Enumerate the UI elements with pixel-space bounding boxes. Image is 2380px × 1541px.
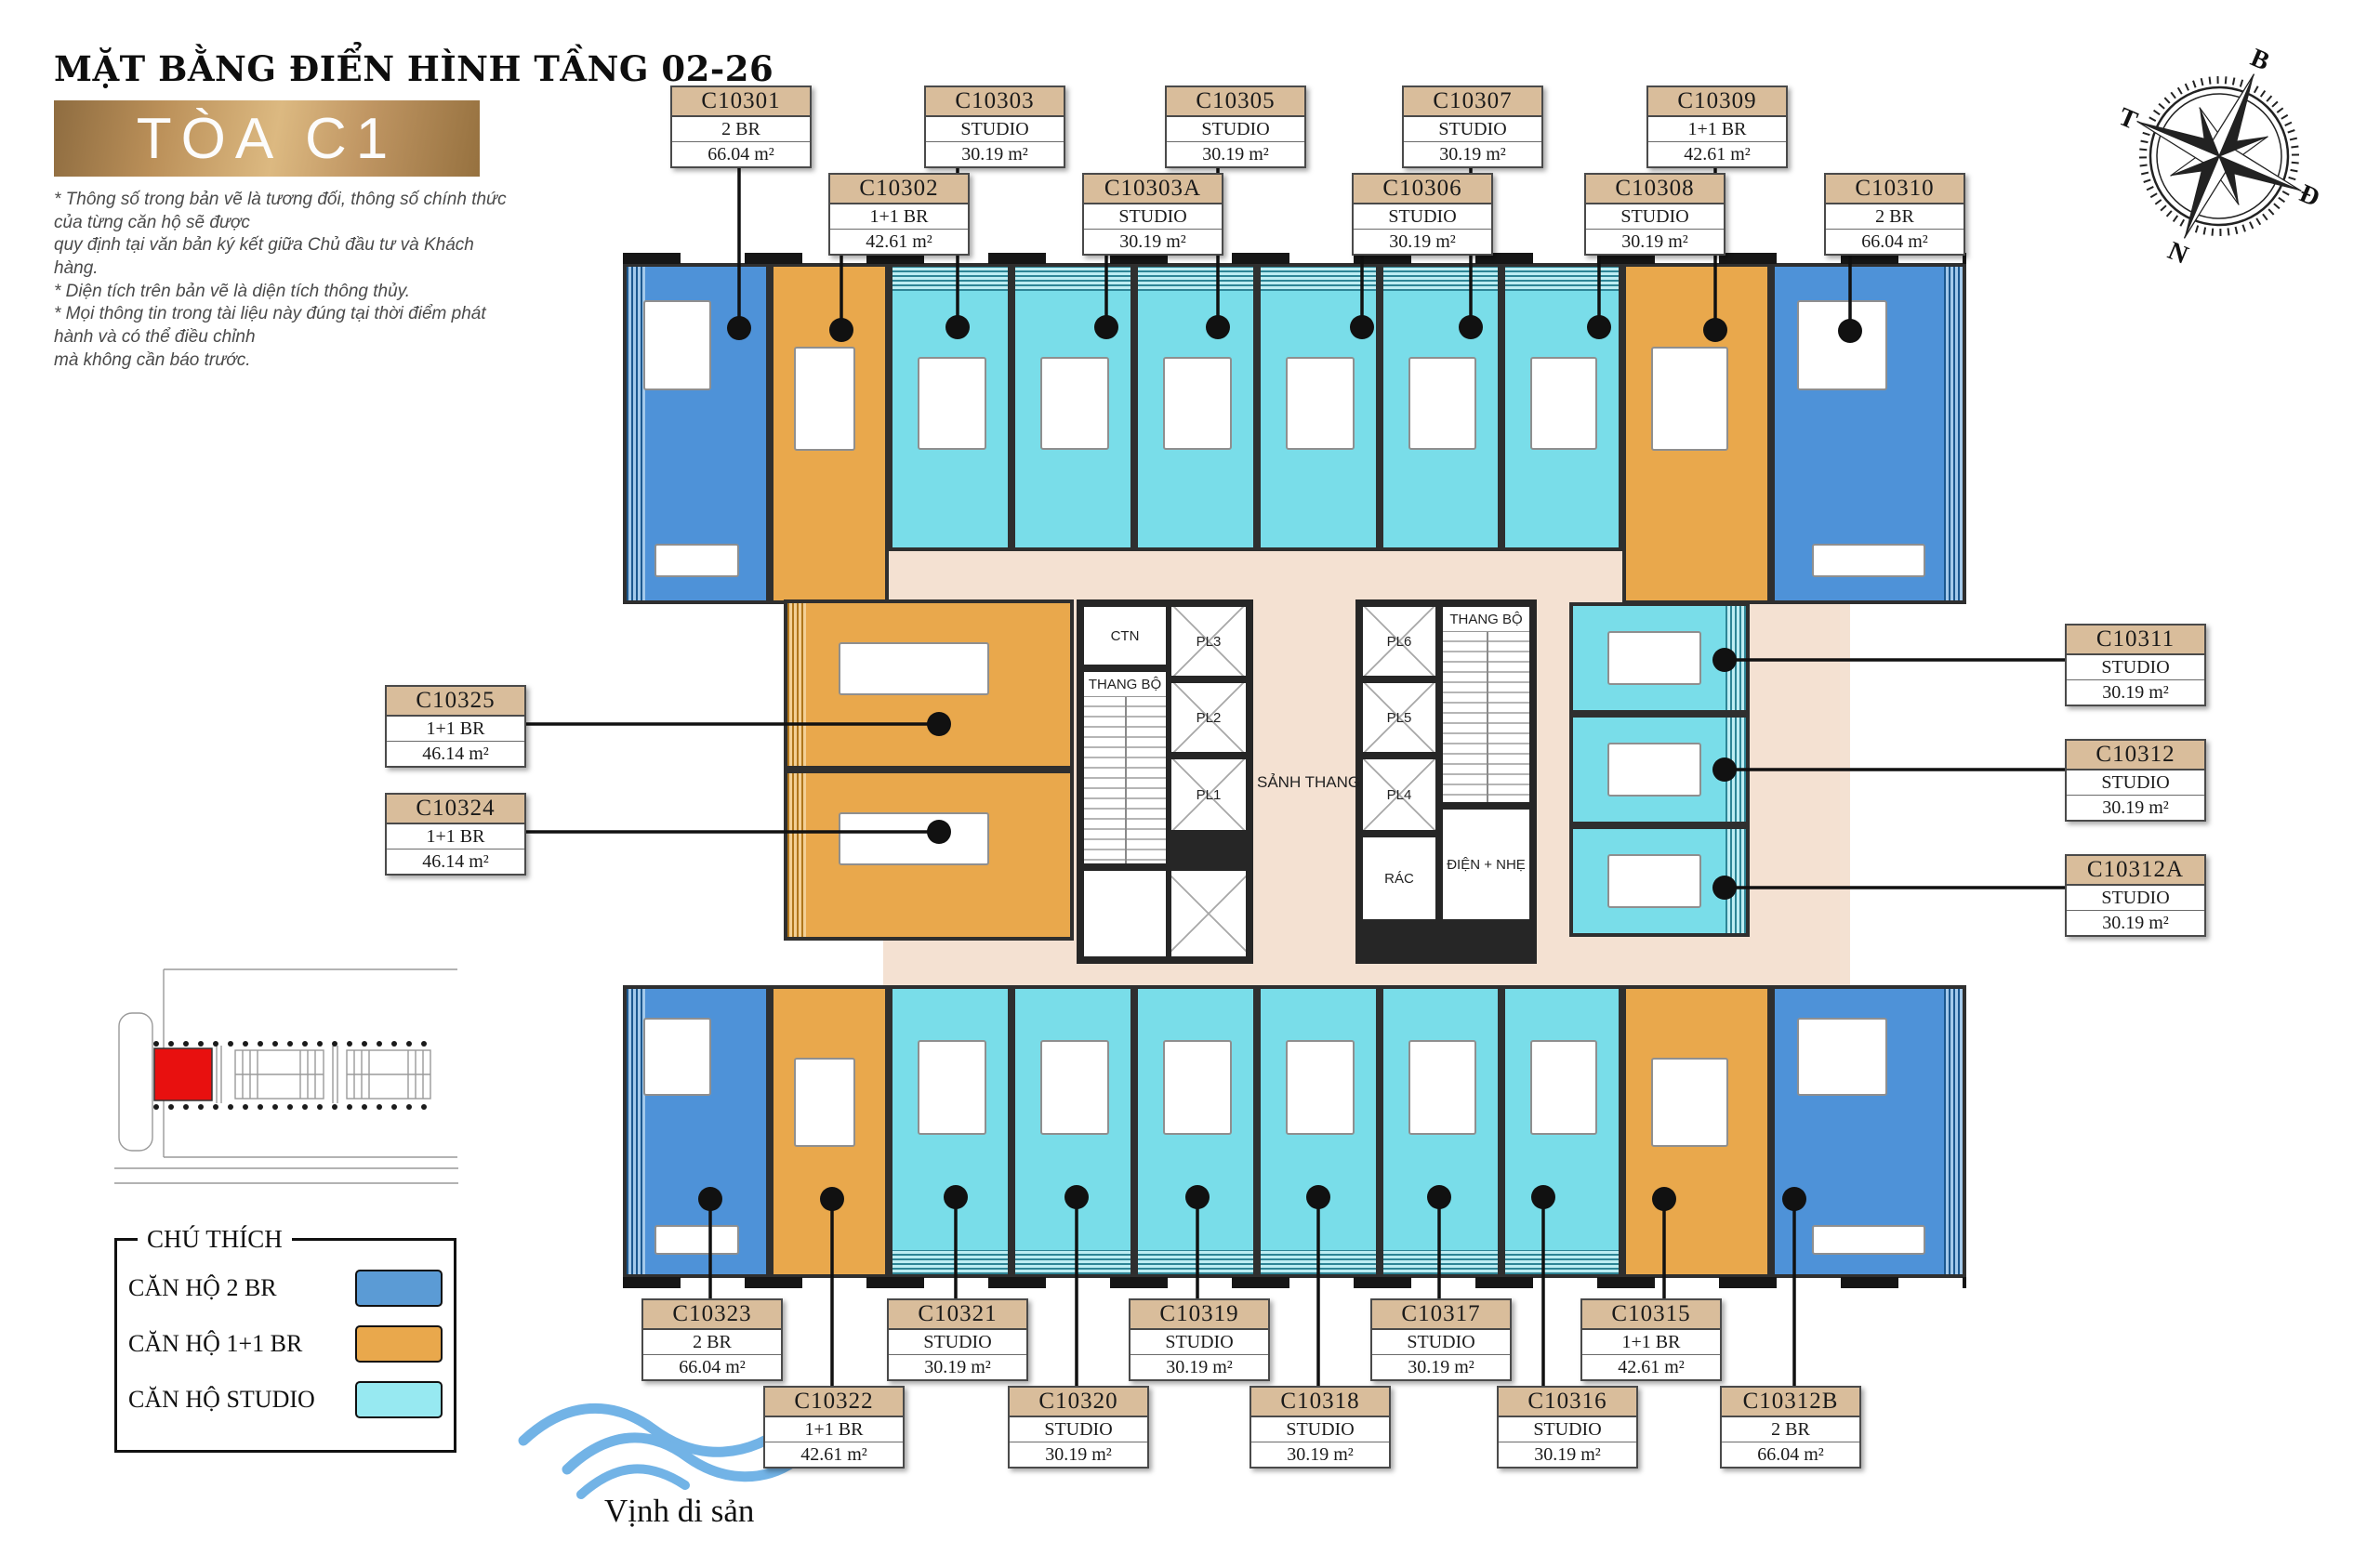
unit-area-value: 30.19 m² [2067, 911, 2204, 935]
legend-row-2br: CĂN HỘ 2 BR [128, 1267, 443, 1310]
unit-id: C10312A [2067, 856, 2204, 886]
unit-area-value: 30.19 m² [1354, 230, 1491, 254]
legend-swatch-studio [355, 1381, 443, 1418]
legend: CHÚ THÍCH CĂN HỘ 2 BR CĂN HỘ 1+1 BR CĂN … [114, 1238, 456, 1453]
unit-area-value: 46.14 m² [387, 742, 524, 766]
unit-id: C10303A [1084, 175, 1222, 204]
unit-area-value: 42.61 m² [765, 1442, 903, 1467]
unit-label-c10319: C10319 STUDIO 30.19 m² [1129, 1298, 1270, 1381]
unit-area-value: 66.04 m² [672, 142, 810, 166]
unit-id: C10318 [1251, 1388, 1389, 1417]
legend-label: CĂN HỘ STUDIO [128, 1386, 315, 1414]
unit-type: STUDIO [1084, 204, 1222, 230]
unit-label-c10301: C10301 2 BR 66.04 m² [670, 86, 812, 168]
unit-label-c10312: C10312 STUDIO 30.19 m² [2065, 739, 2206, 822]
unit-type: STUDIO [1251, 1417, 1389, 1442]
unit-label-c10324: C10324 1+1 BR 46.14 m² [385, 793, 526, 876]
unit-label-c10322: C10322 1+1 BR 42.61 m² [763, 1386, 905, 1469]
unit-label-c10320: C10320 STUDIO 30.19 m² [1008, 1386, 1149, 1469]
unit-id: C10324 [387, 795, 524, 824]
unit-id: C10306 [1354, 175, 1491, 204]
unit-label-c10303a: C10303A STUDIO 30.19 m² [1082, 173, 1223, 256]
unit-label-c10310: C10310 2 BR 66.04 m² [1824, 173, 1965, 256]
unit-area-value: 66.04 m² [643, 1355, 781, 1379]
unit-label-c10308: C10308 STUDIO 30.19 m² [1584, 173, 1725, 256]
unit-area-value: 66.04 m² [1826, 230, 1963, 254]
unit-area-value: 30.19 m² [2067, 796, 2204, 820]
unit-type: STUDIO [1372, 1330, 1510, 1355]
legend-swatch-1plus1br [355, 1325, 443, 1363]
unit-type: 1+1 BR [1582, 1330, 1720, 1355]
unit-area-value: 30.19 m² [1404, 142, 1541, 166]
unit-id: C10316 [1499, 1388, 1636, 1417]
unit-area-value: 30.19 m² [1084, 230, 1222, 254]
unit-id: C10312 [2067, 741, 2204, 770]
unit-id: C10308 [1586, 175, 1724, 204]
unit-type: 1+1 BR [830, 204, 968, 230]
unit-id: C10321 [889, 1300, 1026, 1330]
unit-id: C10325 [387, 687, 524, 717]
unit-label-c10303: C10303 STUDIO 30.19 m² [924, 86, 1065, 168]
leader-dots [698, 315, 1862, 1211]
unit-area-value: 30.19 m² [2067, 680, 2204, 705]
unit-id: C10323 [643, 1300, 781, 1330]
unit-type: STUDIO [1010, 1417, 1147, 1442]
legend-swatch-2br [355, 1270, 443, 1307]
unit-label-c10307: C10307 STUDIO 30.19 m² [1402, 86, 1543, 168]
unit-id: C10302 [830, 175, 968, 204]
unit-area-value: 46.14 m² [387, 850, 524, 874]
unit-area-value: 30.19 m² [926, 142, 1064, 166]
unit-id: C10319 [1130, 1300, 1268, 1330]
unit-area-value: 66.04 m² [1722, 1442, 1859, 1467]
unit-type: STUDIO [1586, 204, 1724, 230]
unit-id: C10303 [926, 87, 1064, 117]
legend-label: CĂN HỘ 1+1 BR [128, 1330, 302, 1358]
unit-area-value: 42.61 m² [1582, 1355, 1720, 1379]
unit-type: STUDIO [1167, 117, 1304, 142]
unit-area-value: 30.19 m² [1010, 1442, 1147, 1467]
legend-row-1plus1br: CĂN HỘ 1+1 BR [128, 1323, 443, 1365]
unit-type: 2 BR [1722, 1417, 1859, 1442]
unit-label-c10311: C10311 STUDIO 30.19 m² [2065, 624, 2206, 706]
unit-area-value: 30.19 m² [889, 1355, 1026, 1379]
legend-row-studio: CĂN HỘ STUDIO [128, 1378, 443, 1421]
unit-area-value: 42.61 m² [830, 230, 968, 254]
unit-type: 1+1 BR [1648, 117, 1786, 142]
unit-area-value: 30.19 m² [1586, 230, 1724, 254]
unit-type: STUDIO [2067, 770, 2204, 796]
legend-label: CĂN HỘ 2 BR [128, 1274, 277, 1302]
unit-type: STUDIO [1130, 1330, 1268, 1355]
unit-type: 1+1 BR [387, 824, 524, 850]
unit-area-value: 30.19 m² [1167, 142, 1304, 166]
unit-type: 1+1 BR [387, 717, 524, 742]
unit-label-c10312a: C10312A STUDIO 30.19 m² [2065, 854, 2206, 937]
unit-label-c10315: C10315 1+1 BR 42.61 m² [1580, 1298, 1722, 1381]
unit-type: STUDIO [889, 1330, 1026, 1355]
unit-type: STUDIO [1499, 1417, 1636, 1442]
unit-id: C10301 [672, 87, 810, 117]
unit-id: C10307 [1404, 87, 1541, 117]
unit-id: C10312B [1722, 1388, 1859, 1417]
legend-title: CHÚ THÍCH [138, 1225, 292, 1254]
unit-id: C10305 [1167, 87, 1304, 117]
unit-area-value: 30.19 m² [1499, 1442, 1636, 1467]
unit-area-value: 30.19 m² [1251, 1442, 1389, 1467]
unit-id: C10310 [1826, 175, 1963, 204]
unit-type: STUDIO [1404, 117, 1541, 142]
unit-area-value: 30.19 m² [1372, 1355, 1510, 1379]
unit-id: C10315 [1582, 1300, 1720, 1330]
unit-area-value: 42.61 m² [1648, 142, 1786, 166]
unit-label-c10318: C10318 STUDIO 30.19 m² [1249, 1386, 1391, 1469]
unit-id: C10320 [1010, 1388, 1147, 1417]
unit-label-c10321: C10321 STUDIO 30.19 m² [887, 1298, 1028, 1381]
unit-label-c10325: C10325 1+1 BR 46.14 m² [385, 685, 526, 768]
unit-type: 2 BR [1826, 204, 1963, 230]
unit-type: 2 BR [672, 117, 810, 142]
unit-type: STUDIO [2067, 655, 2204, 680]
unit-id: C10317 [1372, 1300, 1510, 1330]
unit-label-c10316: C10316 STUDIO 30.19 m² [1497, 1386, 1638, 1469]
unit-type: STUDIO [926, 117, 1064, 142]
unit-type: 1+1 BR [765, 1417, 903, 1442]
unit-label-c10317: C10317 STUDIO 30.19 m² [1370, 1298, 1512, 1381]
unit-id: C10311 [2067, 626, 2204, 655]
unit-type: STUDIO [2067, 886, 2204, 911]
unit-label-c10309: C10309 1+1 BR 42.61 m² [1646, 86, 1788, 168]
unit-id: C10309 [1648, 87, 1786, 117]
unit-label-c10312b: C10312B 2 BR 66.04 m² [1720, 1386, 1861, 1469]
unit-label-c10302: C10302 1+1 BR 42.61 m² [828, 173, 970, 256]
unit-label-c10305: C10305 STUDIO 30.19 m² [1165, 86, 1306, 168]
unit-id: C10322 [765, 1388, 903, 1417]
unit-label-c10306: C10306 STUDIO 30.19 m² [1352, 173, 1493, 256]
unit-label-c10323: C10323 2 BR 66.04 m² [641, 1298, 783, 1381]
unit-type: 2 BR [643, 1330, 781, 1355]
unit-type: STUDIO [1354, 204, 1491, 230]
unit-area-value: 30.19 m² [1130, 1355, 1268, 1379]
